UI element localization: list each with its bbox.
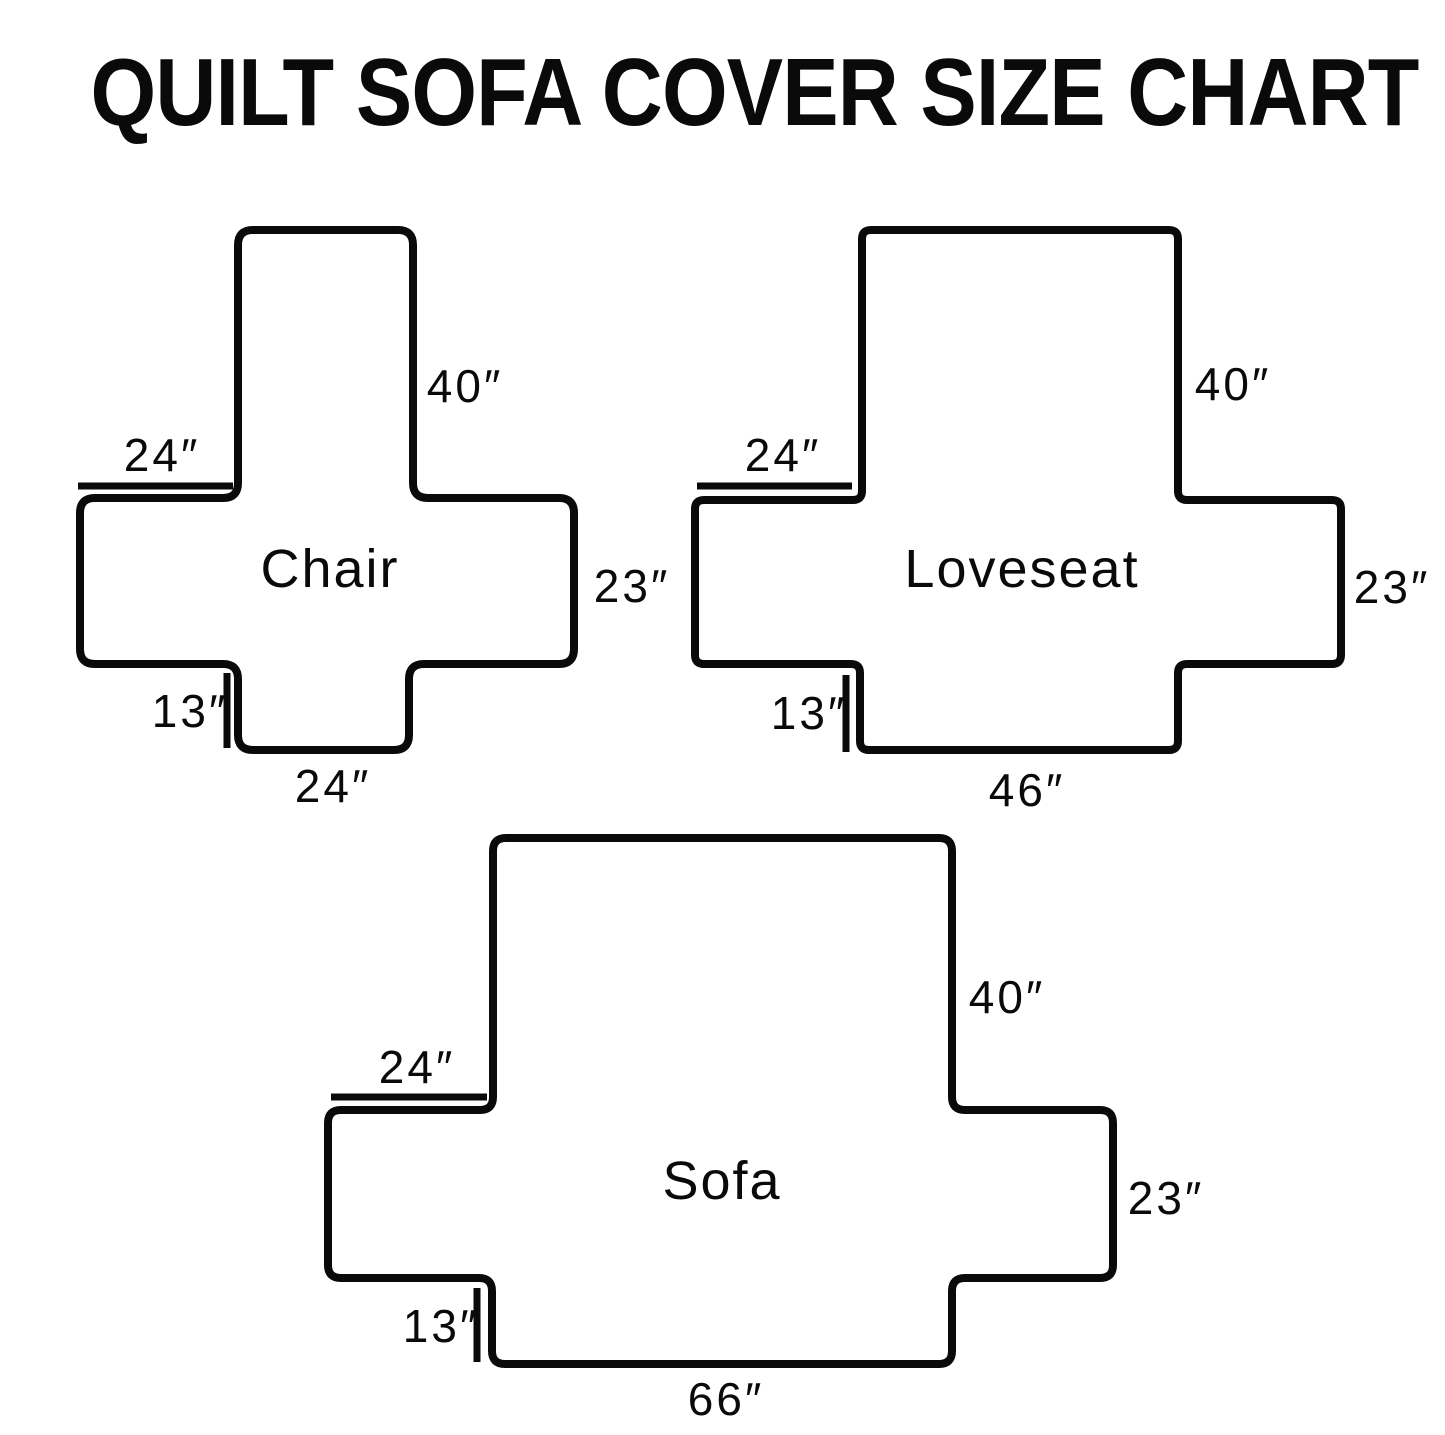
sofa-name-label: Sofa (662, 1150, 781, 1212)
chair-skirt-height-label: 13″ (152, 684, 228, 738)
chair-back-height-label: 40″ (427, 359, 503, 413)
sofa-cover-outline (328, 838, 1113, 1364)
sofa-back-height-label: 40″ (969, 970, 1045, 1024)
chair-name-label: Chair (260, 538, 399, 600)
sofa-skirt-height-label: 13″ (403, 1299, 479, 1353)
chair-seat-width-label: 24″ (295, 759, 371, 813)
loveseat-seat-width-label: 46″ (989, 763, 1065, 817)
sofa-arm-side-height-label: 23″ (1128, 1171, 1204, 1225)
loveseat-back-height-label: 40″ (1195, 357, 1271, 411)
size-chart: QUILT SOFA COVER SIZE CHART 40″ 24″ 23″ … (0, 0, 1445, 1435)
loveseat-name-label: Loveseat (904, 538, 1139, 600)
chair-arm-top-width-label: 24″ (124, 428, 200, 482)
sofa-arm-top-width-label: 24″ (379, 1040, 455, 1094)
loveseat-arm-side-height-label: 23″ (1354, 560, 1430, 614)
sofa-seat-width-label: 66″ (688, 1372, 764, 1426)
chair-arm-side-height-label: 23″ (594, 559, 670, 613)
loveseat-arm-top-width-label: 24″ (745, 428, 821, 482)
chair-cover-outline (80, 230, 574, 750)
loveseat-skirt-height-label: 13″ (771, 686, 847, 740)
loveseat-cover-outline (695, 230, 1341, 750)
